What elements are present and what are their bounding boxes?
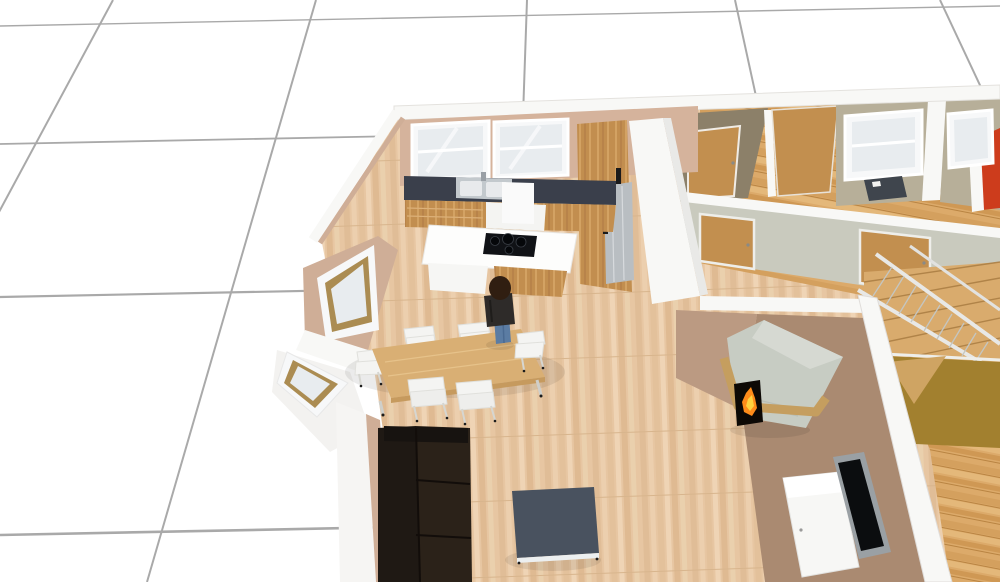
bedroom-window-2[interactable]	[948, 110, 993, 168]
open-door[interactable]	[772, 106, 838, 196]
chair-foot	[416, 420, 419, 423]
chair-foot	[446, 417, 449, 420]
chair-foot	[464, 423, 467, 426]
sink-bowl	[460, 181, 482, 196]
kitchen-window-1[interactable]	[412, 121, 489, 183]
chair-foot	[523, 370, 526, 373]
table-foot	[518, 562, 521, 565]
desk-paper	[872, 181, 881, 187]
chair-foot	[360, 385, 363, 388]
burner	[516, 237, 526, 247]
sofa-seat	[416, 426, 472, 582]
burner	[503, 234, 514, 245]
bedroom-window[interactable]	[845, 110, 922, 180]
dining-chair[interactable]	[458, 392, 495, 410]
grid-line-horizontal	[0, 6, 1000, 26]
faucet	[481, 172, 486, 181]
person-head	[489, 276, 511, 300]
sideboard-handle	[799, 528, 802, 531]
door-handle	[731, 161, 734, 164]
white-cabinet-block	[502, 182, 534, 224]
dining-chair[interactable]	[410, 389, 447, 407]
coffee-table[interactable]	[505, 487, 601, 571]
door-handle	[746, 243, 749, 246]
kitchen	[400, 106, 708, 304]
grid-line-vertical	[0, 0, 113, 582]
burner	[491, 237, 500, 246]
window-glass	[954, 117, 988, 162]
appliance-handle	[616, 168, 621, 184]
floorplan-3d-viewport	[0, 0, 1000, 582]
coffee-table-top	[512, 487, 599, 558]
table-foot	[382, 414, 385, 417]
table-foot	[596, 558, 599, 561]
sofa-back	[378, 426, 420, 582]
island-end-cabinet	[428, 263, 488, 294]
sofa[interactable]	[378, 426, 472, 582]
chair-foot	[380, 383, 383, 386]
kitchen-window-2[interactable]	[494, 119, 568, 178]
table-foot	[540, 395, 543, 398]
chair-foot	[542, 367, 545, 370]
hallway-door-1[interactable]	[700, 214, 754, 269]
chair-foot	[494, 420, 497, 423]
burner	[505, 246, 513, 254]
door-handle	[922, 261, 925, 264]
desk[interactable]	[864, 176, 907, 201]
sofa-armrest	[384, 426, 468, 443]
